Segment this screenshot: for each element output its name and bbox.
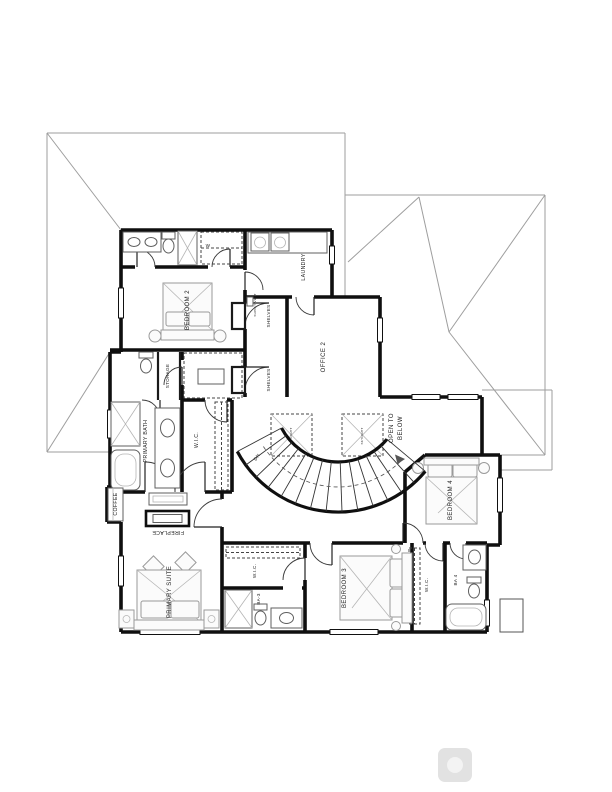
toilet	[469, 584, 480, 598]
toilet-tank	[467, 577, 481, 583]
stair-inner-wall	[282, 428, 388, 462]
window-laundry	[330, 246, 335, 264]
bedroom4-label: BEDROOM 4	[448, 480, 454, 520]
fireplace-group	[146, 493, 189, 526]
window-open-below-1	[412, 395, 440, 400]
shower	[225, 590, 252, 628]
chimney-chase	[198, 369, 224, 384]
primary-bath-label: PRIMARY BATH	[143, 420, 149, 463]
nightstand	[149, 330, 161, 342]
floor-plan-drawing: BEDROOM 2 W LAUNDRY OFFICE 2 SHELVES SHE…	[0, 0, 612, 792]
office2-label: OFFICE 2	[321, 341, 327, 372]
open-to-below-label-1: OPEN TO	[389, 413, 395, 443]
headboard	[161, 330, 214, 340]
bedroom2-label: BEDROOM 2	[185, 290, 191, 330]
pillow	[428, 464, 452, 477]
bath3-fixtures	[225, 590, 302, 628]
media-niche	[149, 493, 187, 505]
headboard	[134, 620, 204, 630]
coffee-label: COFFEE	[113, 492, 119, 515]
window-bedroom2	[119, 288, 124, 318]
window-primary-suite-left	[119, 556, 124, 586]
window-open-below-2	[448, 395, 478, 400]
toilet	[141, 359, 152, 373]
nightstand	[214, 330, 226, 342]
bedroom3-furniture	[340, 545, 412, 631]
wic3-label: W.I.C.	[252, 564, 257, 578]
sink	[280, 613, 294, 624]
primary-wic-label: W.I.C.	[194, 432, 200, 448]
bath3-label: BA-3	[256, 593, 261, 605]
shelves-lower-label: SHELVES	[266, 369, 271, 392]
shelf-alcove-upper	[232, 303, 245, 329]
skylight-note-2: SKYLIGHT	[360, 428, 364, 445]
bath2-fixtures	[123, 231, 197, 265]
linen-closet	[178, 231, 197, 265]
nightstand	[119, 610, 134, 628]
nightstand	[204, 610, 219, 628]
wic4-label: W.I.C.	[424, 578, 429, 592]
primary-wic-wardrobe	[215, 402, 228, 490]
bay-bumpout	[500, 599, 523, 632]
floor-plan-page: BEDROOM 2 W LAUNDRY OFFICE 2 SHELVES SHE…	[0, 0, 612, 792]
sink	[469, 550, 481, 564]
sink	[161, 459, 175, 477]
laundry-appliances	[248, 232, 327, 253]
bath4-label: BA 4	[453, 574, 458, 585]
fireplace-label: FIREPLACE	[152, 529, 184, 535]
sink	[161, 419, 175, 437]
shower	[111, 402, 140, 446]
pillow	[171, 601, 199, 618]
shelves-upper-label: SHELVES	[266, 305, 271, 328]
nightstand	[392, 622, 401, 631]
nightstand	[479, 463, 490, 474]
nightstand	[392, 545, 401, 554]
pillow	[166, 312, 187, 326]
wic2-label: W	[206, 243, 211, 248]
bathtub	[111, 450, 140, 490]
primary-suite-label: PRIMARY SUITE	[167, 566, 173, 618]
skylight-note-1: SKYLIGHT	[289, 428, 293, 445]
supply-vent-note: SUPPLY VENT	[253, 293, 257, 316]
photo-watermark	[438, 748, 472, 782]
shelf-alcove-lower	[232, 367, 245, 393]
sink	[145, 238, 157, 247]
firebox	[153, 515, 182, 523]
toilet-tank	[139, 352, 153, 358]
window-bedroom3-bottom	[330, 630, 378, 635]
bedroom3-label: BEDROOM 3	[342, 568, 348, 608]
window-office	[378, 318, 383, 342]
toilet	[163, 239, 174, 253]
stairs-dn-label: DN	[253, 453, 261, 462]
open-to-below-label-2: BELOW	[398, 416, 404, 440]
headboard	[424, 458, 479, 465]
toilet	[255, 611, 266, 625]
headboard	[402, 553, 412, 623]
sink	[128, 238, 140, 247]
pillow	[189, 312, 210, 326]
pillow	[453, 464, 477, 477]
window-bedroom4	[498, 478, 503, 512]
pillow	[141, 601, 169, 618]
storage-label: STORAGE	[165, 364, 170, 388]
toilet-tank	[162, 232, 175, 239]
laundry-label: LAUNDRY	[301, 253, 307, 280]
bathtub	[446, 604, 486, 630]
bath4-fixtures	[446, 545, 486, 630]
